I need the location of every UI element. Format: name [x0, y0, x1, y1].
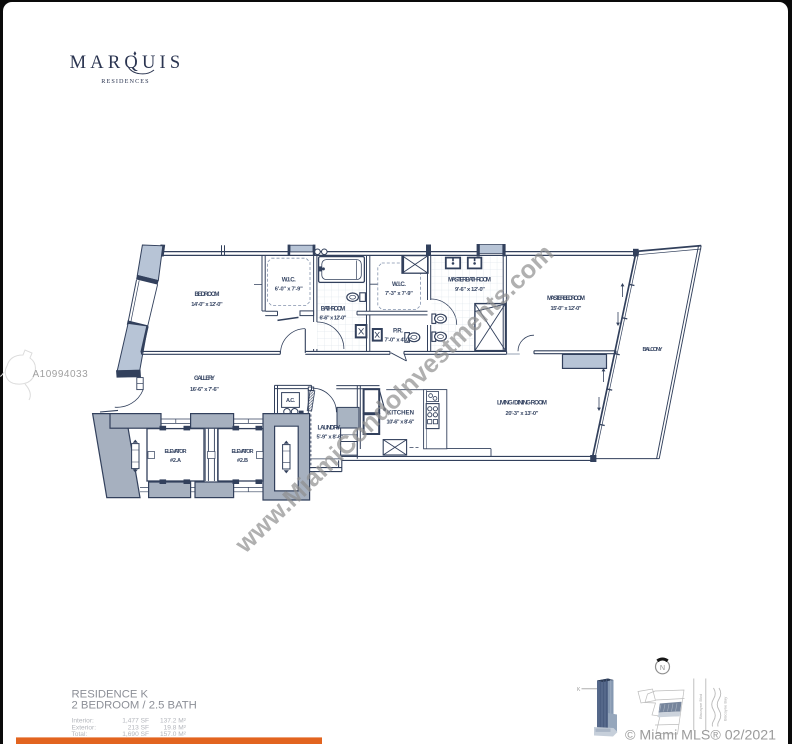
svg-text:BEDROOM: BEDROOM	[195, 291, 220, 298]
svg-text:2 BEDROOM / 2.5 BATH: 2 BEDROOM / 2.5 BATH	[72, 700, 197, 712]
svg-text:BATHROOM: BATHROOM	[321, 306, 346, 313]
svg-text:RESIDENCES: RESIDENCES	[101, 78, 149, 85]
svg-text:16'-6" x 7'-6": 16'-6" x 7'-6"	[190, 387, 219, 393]
svg-text:A10994033: A10994033	[33, 369, 89, 380]
svg-text:157.0 M²: 157.0 M²	[160, 731, 187, 738]
svg-text:ELEVATOR: ELEVATOR	[232, 449, 254, 455]
svg-text:BALCONY: BALCONY	[643, 347, 663, 353]
svg-text:GALLERY: GALLERY	[194, 375, 215, 382]
svg-text:7'-3" x 7'-9": 7'-3" x 7'-9"	[385, 291, 413, 297]
svg-text:14'-0" x 12'-0": 14'-0" x 12'-0"	[191, 302, 223, 308]
svg-text:15'-0" x 12'-0": 15'-0" x 12'-0"	[551, 306, 582, 312]
svg-text:Biscayne Bay: Biscayne Bay	[723, 697, 728, 721]
svg-text:P.R.: P.R.	[393, 328, 403, 335]
svg-text:LAUNDRY: LAUNDRY	[318, 425, 341, 432]
svg-text:MARQUIS: MARQUIS	[70, 53, 185, 73]
svg-text:ELEVATOR: ELEVATOR	[165, 449, 187, 455]
svg-text:#2.B: #2.B	[237, 458, 248, 464]
svg-text:LIVING / DINING ROOM: LIVING / DINING ROOM	[497, 400, 547, 407]
svg-text:20'-3" x 13'-0": 20'-3" x 13'-0"	[506, 411, 539, 417]
svg-text:MASTER BATHROOM: MASTER BATHROOM	[448, 277, 491, 284]
svg-text:1,690 SF: 1,690 SF	[122, 731, 149, 738]
svg-text:W.I.C.: W.I.C.	[392, 281, 406, 288]
svg-text:#2.A: #2.A	[170, 458, 181, 464]
svg-text:7'-0" x 4'-0": 7'-0" x 4'-0"	[385, 338, 412, 344]
svg-text:9'-6" x 12'-0": 9'-6" x 12'-0"	[455, 287, 485, 293]
svg-text:N: N	[660, 663, 665, 672]
svg-text:W.I.C.: W.I.C.	[282, 277, 296, 284]
svg-text:© Miami MLS® 02/2021: © Miami MLS® 02/2021	[625, 728, 776, 744]
svg-text:Total:: Total:	[72, 731, 88, 738]
svg-text:K: K	[577, 687, 581, 693]
svg-text:Biscayne Blvd: Biscayne Blvd	[698, 694, 703, 719]
svg-text:A.C.: A.C.	[286, 398, 296, 404]
svg-text:6'-0" x 7'-9": 6'-0" x 7'-9"	[275, 287, 303, 293]
svg-text:MASTER BEDROOM: MASTER BEDROOM	[547, 295, 585, 302]
svg-text:6'-6" x 12'-0": 6'-6" x 12'-0"	[320, 316, 347, 322]
